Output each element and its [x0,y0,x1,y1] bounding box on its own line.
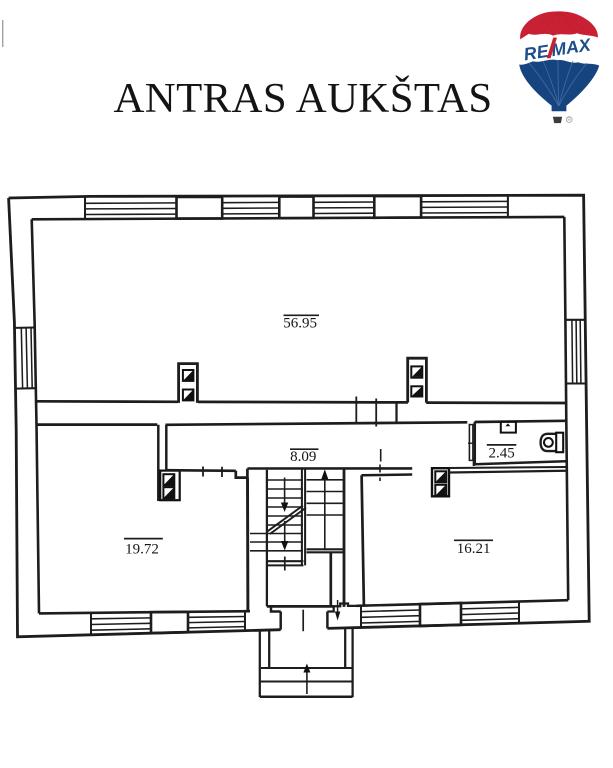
svg-text:R: R [567,118,571,124]
svg-text:RE: RE [522,41,551,65]
svg-text:2.45: 2.45 [488,445,514,461]
svg-text:19.72: 19.72 [125,541,159,557]
svg-text:56.95: 56.95 [283,315,317,331]
svg-text:ANTRAS AUKŠTAS: ANTRAS AUKŠTAS [113,75,492,122]
svg-text:8.09: 8.09 [290,449,316,465]
svg-text:16.21: 16.21 [457,541,491,557]
